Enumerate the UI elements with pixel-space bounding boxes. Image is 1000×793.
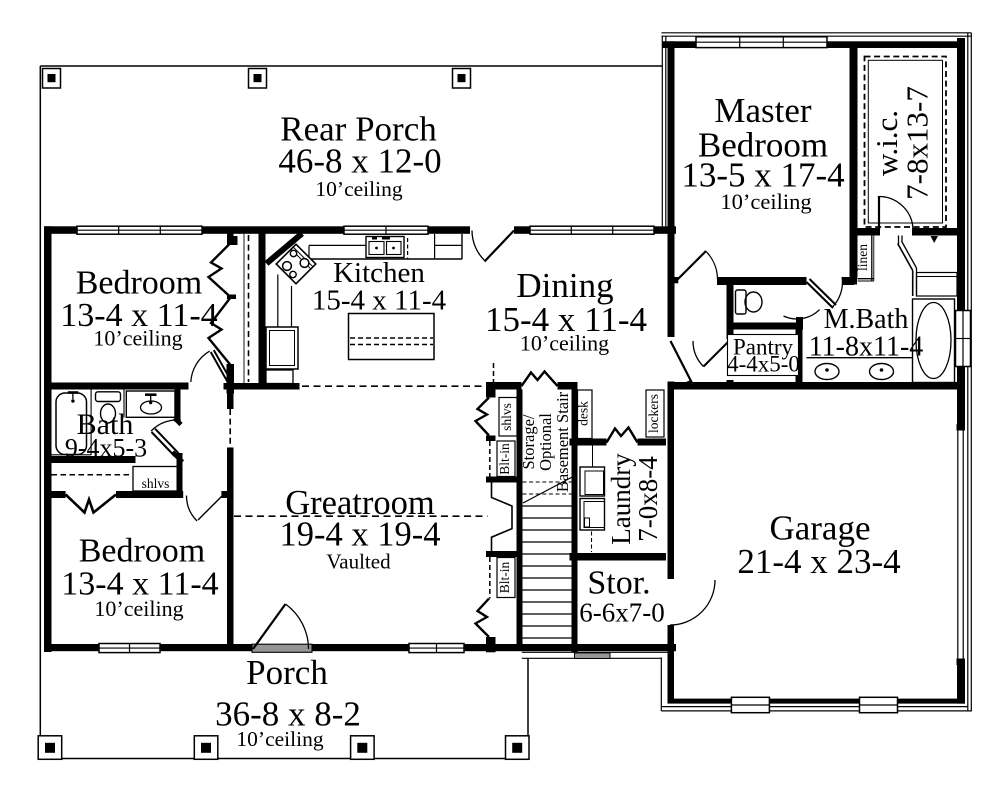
- svg-text:46-8 x 12-0: 46-8 x 12-0: [278, 142, 441, 181]
- svg-text:4-4x5-0: 4-4x5-0: [727, 352, 800, 377]
- svg-text:7-8x13-7: 7-8x13-7: [900, 86, 935, 200]
- svg-text:10’ceiling: 10’ceiling: [520, 331, 609, 356]
- svg-text:10’ceiling: 10’ceiling: [236, 727, 323, 751]
- svg-text:10’ceiling: 10’ceiling: [315, 177, 402, 201]
- svg-text:6-6x7-0: 6-6x7-0: [579, 598, 664, 628]
- svg-text:Stor.: Stor.: [587, 565, 650, 602]
- svg-text:Bedroom: Bedroom: [79, 533, 206, 570]
- svg-text:M.Bath: M.Bath: [824, 304, 909, 335]
- svg-text:10’ceiling: 10’ceiling: [720, 189, 811, 214]
- svg-text:Blt-in: Blt-in: [497, 562, 512, 594]
- svg-text:Basement Stair: Basement Stair: [553, 391, 572, 492]
- svg-text:10’ceiling: 10’ceiling: [94, 596, 183, 621]
- svg-text:Vaulted: Vaulted: [326, 550, 391, 574]
- svg-text:desk: desk: [576, 401, 591, 426]
- svg-text:15-4 x 11-4: 15-4 x 11-4: [312, 285, 447, 317]
- svg-text:7-0x8-4: 7-0x8-4: [633, 456, 663, 542]
- svg-text:10’ceiling: 10’ceiling: [93, 326, 182, 351]
- svg-text:lockers: lockers: [646, 394, 661, 433]
- svg-text:Blt-in: Blt-in: [497, 443, 512, 475]
- svg-text:shlvs: shlvs: [142, 476, 170, 491]
- svg-text:Master: Master: [714, 91, 812, 130]
- svg-text:Porch: Porch: [246, 653, 328, 692]
- svg-text:shlvs: shlvs: [499, 403, 514, 431]
- svg-text:Bedroom: Bedroom: [76, 265, 203, 302]
- svg-text:21-4 x 23-4: 21-4 x 23-4: [737, 542, 900, 581]
- svg-text:Laundry: Laundry: [606, 453, 636, 545]
- svg-text:linen: linen: [855, 244, 870, 271]
- svg-text:19-4 x 19-4: 19-4 x 19-4: [280, 516, 441, 554]
